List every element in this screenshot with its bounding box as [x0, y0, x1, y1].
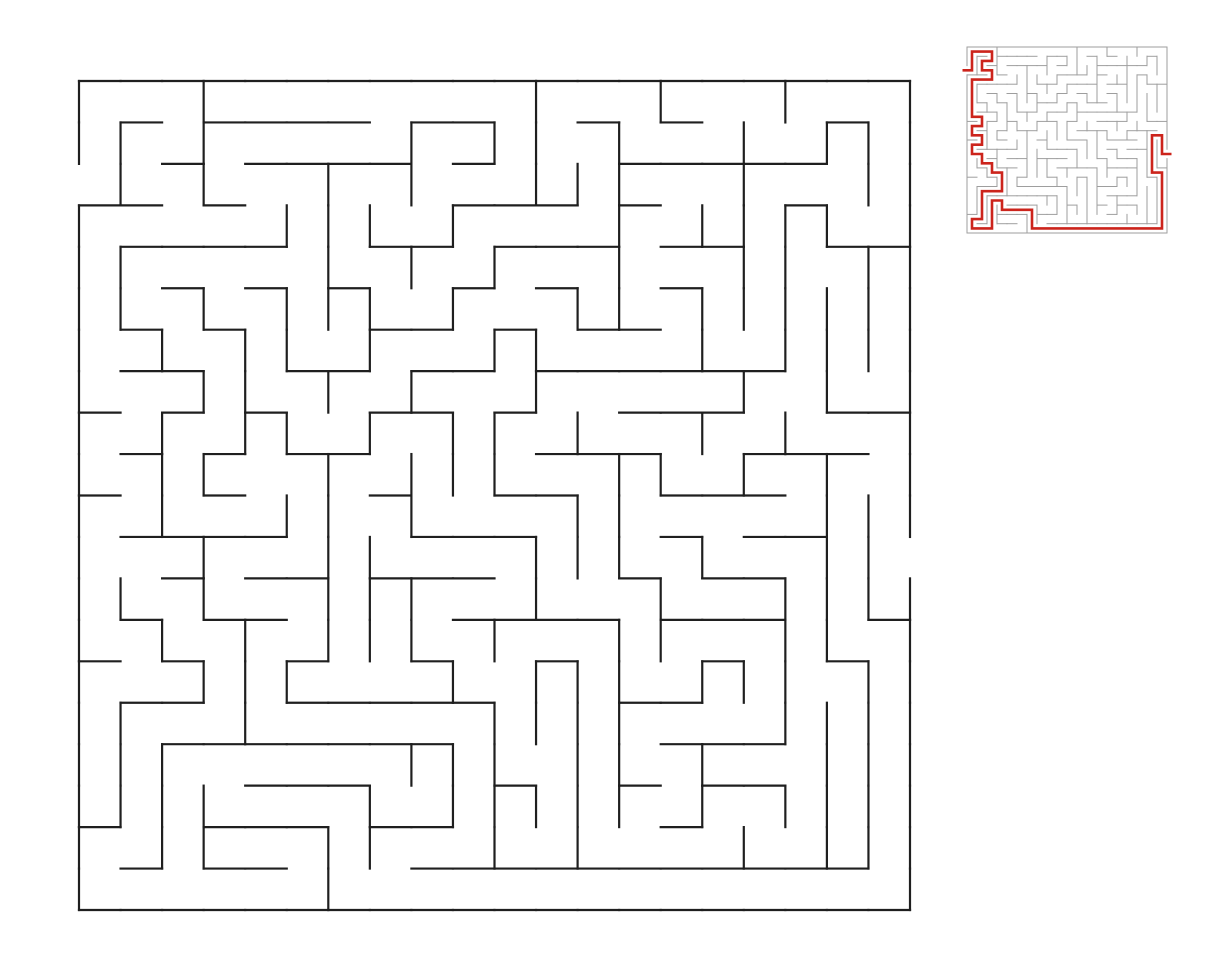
- main-maze: [79, 81, 910, 910]
- solution-inset-maze: [963, 47, 1172, 233]
- maze-canvas: [0, 0, 1225, 980]
- maze-worksheet: [0, 0, 1225, 980]
